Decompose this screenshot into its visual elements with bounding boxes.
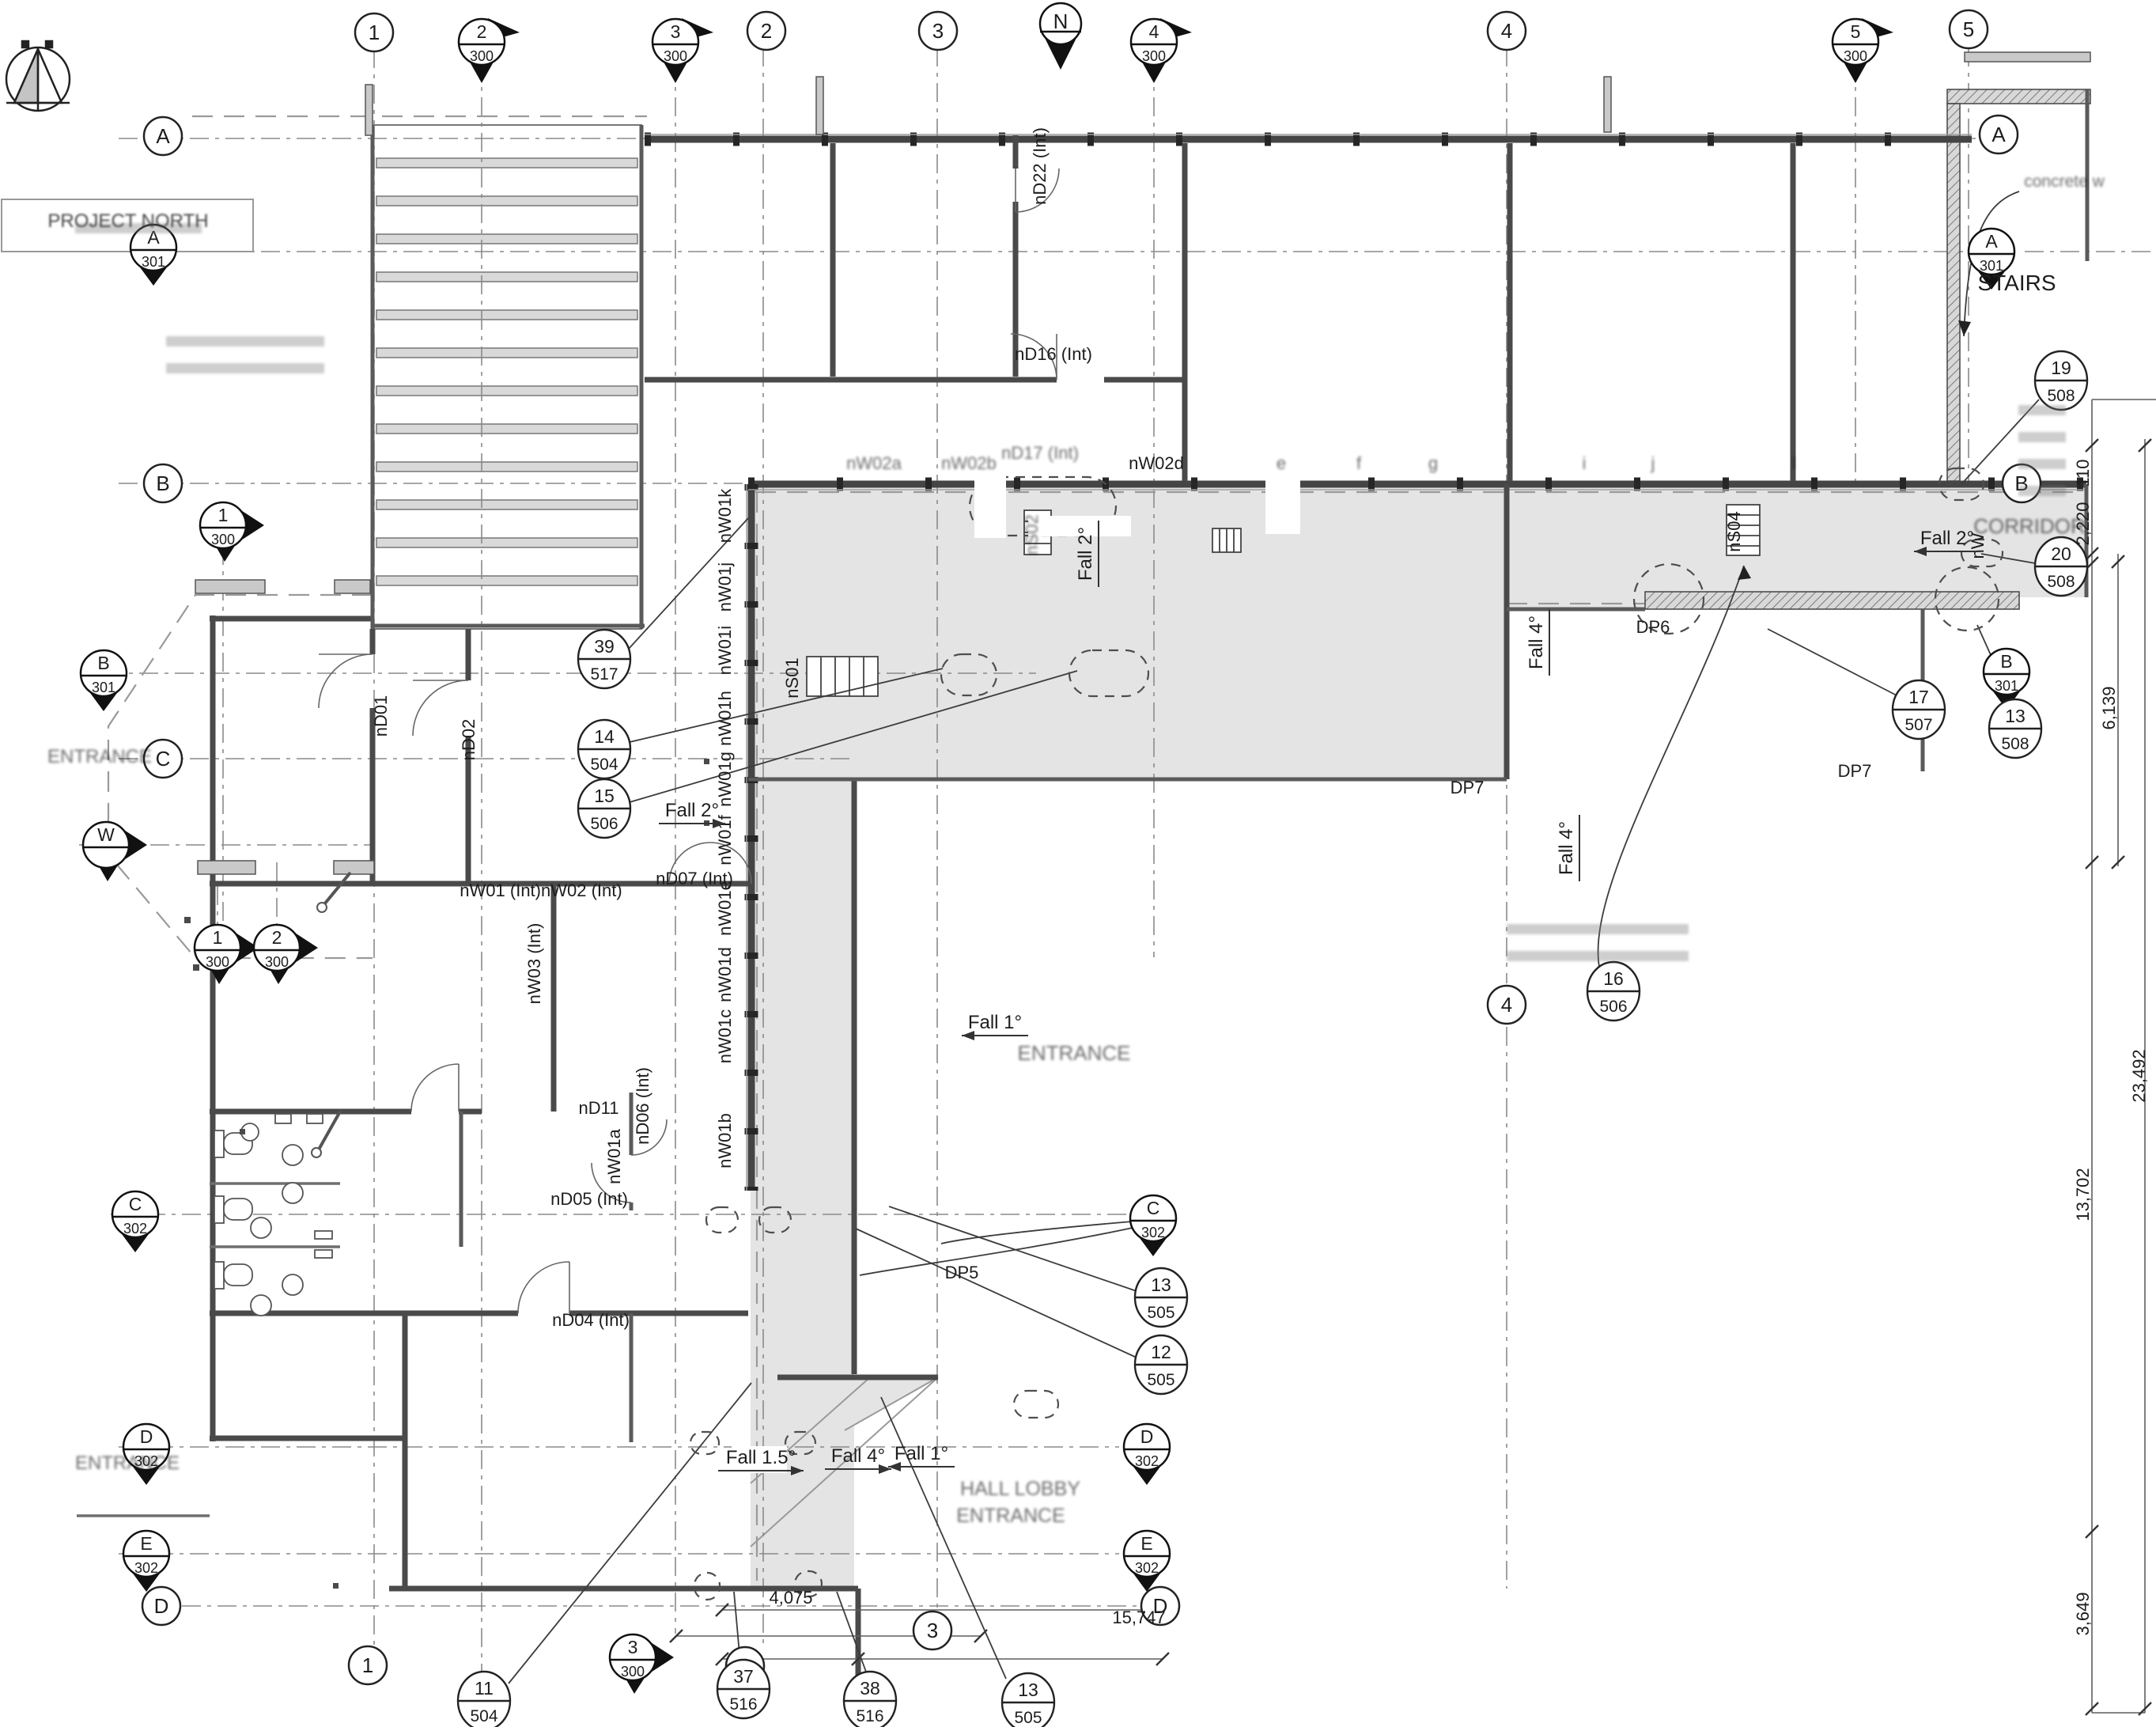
- stair-nS01: [807, 657, 878, 696]
- callout-sheet: 508: [2047, 573, 2075, 591]
- section-marker-sheet: 302: [1135, 1453, 1159, 1469]
- shelf: [315, 1231, 332, 1239]
- grid-bubble-5: 5: [1950, 10, 1988, 48]
- callout-38-516: 38516: [844, 1672, 896, 1727]
- dimension-15747: 15,747: [1112, 1608, 1165, 1627]
- section-marker-sheet: 300: [621, 1664, 645, 1680]
- fall-annotation: Fall 2°: [1914, 528, 1980, 556]
- callout-sheet: 508: [2001, 735, 2029, 753]
- section-marker-number: C: [1147, 1198, 1160, 1218]
- stair-nS03: [1212, 528, 1241, 552]
- tag-nd06-int-: nD06 (Int): [633, 1067, 652, 1145]
- callout-sheet: 505: [1014, 1709, 1042, 1727]
- tag-ns02: nS02: [1022, 514, 1042, 555]
- section-marker-sheet: 301: [92, 680, 115, 695]
- callout-13-505: 13505: [1002, 1673, 1054, 1727]
- dimension-23492: 23,492: [2129, 1049, 2149, 1102]
- tag-nw01d: nW01d: [715, 947, 735, 1002]
- wc-fixture: [214, 1196, 252, 1223]
- section-marker-C-302: C302: [112, 1191, 158, 1252]
- door-nD04: [518, 1262, 569, 1313]
- fall-text: Fall 2°: [665, 800, 719, 821]
- tag-nd04-int-: nD04 (Int): [552, 1310, 630, 1330]
- project-north-label: PROJECT NORTH: [9, 210, 247, 233]
- dimension-6139: 6,139: [2099, 686, 2119, 729]
- tag-nw01e: nW01e: [715, 881, 735, 936]
- note-entrance: ENTRANCE: [75, 1452, 180, 1474]
- callout-sheet: 505: [1147, 1304, 1174, 1322]
- callout-number: 20: [2051, 543, 2071, 564]
- fall-annotation: Fall 1°: [962, 1012, 1028, 1040]
- tag-nd01: nD01: [371, 695, 391, 737]
- section-marker-number: E: [140, 1533, 152, 1554]
- section-marker-C-302: C302: [1130, 1195, 1176, 1256]
- section-marker-number: E: [1140, 1533, 1152, 1554]
- section-marker-number: B: [2000, 651, 2012, 672]
- sink: [307, 1114, 323, 1123]
- section-marker-sheet: 300: [1844, 48, 1867, 64]
- grid-bubble-label: 3: [932, 19, 944, 43]
- grid-bubble-4: 4: [1488, 12, 1526, 50]
- callout-number: 14: [594, 726, 615, 747]
- callout-sheet: 516: [729, 1695, 757, 1714]
- tag-nw01j: nW01j: [715, 562, 735, 612]
- callout-number: 39: [594, 636, 615, 657]
- section-marker-3-300: 3300: [652, 18, 713, 83]
- grid-bubble-A: A: [1980, 116, 2018, 153]
- tag-nw03-int-: nW03 (Int): [524, 923, 544, 1005]
- section-marker-sheet: 302: [1141, 1225, 1165, 1240]
- callout-sheet: 507: [1904, 716, 1932, 734]
- roof-gray-zones: [751, 484, 2086, 1589]
- callout-number: 13: [1018, 1680, 1038, 1700]
- tag-ns04: nS04: [1724, 511, 1744, 551]
- grid-bubble-3: 3: [919, 12, 957, 50]
- floor-plan-sheet: 12345ABCAB4123DD2300330043005300N1300130…: [0, 0, 2156, 1727]
- fall-text: Fall 4°: [1526, 615, 1547, 669]
- fall-annotation: Fall 4°: [1526, 609, 1549, 676]
- callout-number: 38: [860, 1678, 880, 1699]
- tag-nd11: nD11: [579, 1098, 619, 1118]
- fall-annotation: Fall 2°: [1075, 521, 1099, 587]
- grid-bubble-label: 1: [369, 21, 380, 44]
- callout-sheet: 504: [470, 1707, 497, 1725]
- fall-annotation: Fall 1.5°: [718, 1447, 804, 1475]
- section-marker-W: W: [83, 822, 147, 881]
- callout-11-504: 11504: [458, 1672, 510, 1727]
- dimension-3649: 3,649: [2073, 1592, 2093, 1635]
- callout-16-506: 16506: [1587, 962, 1640, 1021]
- grid-bubble-label: 2: [761, 19, 772, 43]
- grid-bubble-label: C: [156, 747, 171, 771]
- grid-bubble-2: 2: [747, 12, 785, 50]
- section-marker-number: 1: [213, 927, 223, 948]
- tag-nw01-int-nw02-int-: nW01 (Int)nW02 (Int): [460, 881, 622, 900]
- basin: [251, 1218, 271, 1238]
- tag-dp6: DP6: [1636, 617, 1670, 637]
- callout-number: 16: [1603, 968, 1624, 989]
- section-marker-sheet: 300: [470, 48, 494, 64]
- tag-e: e: [1277, 453, 1286, 473]
- grid-bubble-label: B: [156, 472, 169, 495]
- section-marker-1-300: 1300: [195, 925, 259, 984]
- tag-nd05-int-: nD05 (Int): [550, 1189, 628, 1209]
- note-stairs: STAIRS: [1977, 271, 2056, 295]
- grid-bubble-label: 3: [927, 1619, 938, 1642]
- section-marker-sheet: 300: [664, 48, 687, 64]
- section-marker-number: 3: [671, 21, 681, 42]
- grid-bubble-label: D: [154, 1594, 169, 1618]
- grid-bubble-label: 5: [1963, 17, 1974, 41]
- grid-bubble-A: A: [144, 117, 182, 155]
- callout-37-516: 37516: [717, 1660, 770, 1718]
- section-marker-2-300: 2300: [459, 18, 520, 83]
- tag-l: l: [1792, 453, 1796, 473]
- section-marker-number: B: [97, 653, 109, 673]
- callout-39-517: 39517: [578, 630, 630, 688]
- tag-nd17-int-: nD17 (Int): [1001, 443, 1079, 463]
- section-marker-sheet: 301: [1995, 678, 2018, 694]
- dimension-13702: 13,702: [2073, 1168, 2093, 1221]
- section-marker-sheet: 300: [265, 954, 289, 970]
- tag-f: f: [1356, 453, 1362, 473]
- door-nD06: [411, 1064, 459, 1112]
- callout-13-505: 13505: [1135, 1268, 1187, 1327]
- fall-text: Fall 4°: [1556, 821, 1577, 875]
- section-marker-number: 1: [218, 505, 229, 525]
- shelf: [315, 1250, 332, 1258]
- dimension-2220: 2,220: [2073, 502, 2093, 545]
- note-concrete-w: concrete w: [2024, 172, 2105, 191]
- tag-nw01g: nW01g: [715, 752, 735, 807]
- section-marker-sheet: 300: [211, 532, 235, 547]
- tag-nd07-int-: nD07 (Int): [656, 869, 733, 888]
- tag-nw01i: nW01i: [715, 626, 735, 675]
- section-marker-number: D: [140, 1426, 153, 1447]
- note-entrance: ENTRANCE: [47, 746, 152, 767]
- note-corridor: CORRIDOR: [1973, 514, 2086, 538]
- callout-number: 37: [733, 1666, 754, 1687]
- note-entrance: ENTRANCE: [956, 1505, 1065, 1527]
- tag-dp7: DP7: [1451, 778, 1485, 797]
- callout-13-508: 13508: [1989, 699, 2041, 758]
- fall-annotation: Fall 2°: [659, 800, 725, 828]
- basin: [282, 1274, 303, 1295]
- grid-bubble-label: A: [1991, 123, 2006, 146]
- fall-text: Fall 2°: [1075, 527, 1096, 581]
- section-marker-number: 4: [1149, 21, 1159, 42]
- section-marker-number: 2: [272, 927, 282, 948]
- section-marker-number: 5: [1851, 21, 1861, 42]
- tag-nw02a: nW02a: [846, 453, 902, 473]
- tag-ns01: nS01: [782, 657, 802, 698]
- callout-sheet: 517: [590, 665, 618, 684]
- tag-nw01c: nW01c: [715, 1009, 735, 1063]
- fall-annotation: Fall 4°: [825, 1445, 891, 1474]
- callout-number: 11: [475, 1678, 494, 1699]
- tag-nw01b: nW01b: [715, 1113, 735, 1168]
- basin: [282, 1183, 303, 1203]
- fall-annotation: Fall 1°: [888, 1443, 955, 1471]
- illegible-note: [1507, 924, 1689, 961]
- callout-sheet: 506: [590, 815, 618, 833]
- fall-text: Fall 4°: [831, 1445, 885, 1467]
- dimension-110: 110: [2073, 459, 2093, 487]
- note-hall-lobby: HALL LOBBY: [960, 1478, 1080, 1500]
- section-marker-number: D: [1140, 1426, 1154, 1447]
- callout-sheet: 504: [590, 756, 618, 774]
- wc-fixture: [214, 1262, 252, 1289]
- tag-nd22-int-: nD22 (Int): [1030, 127, 1050, 205]
- callout-sheet: 508: [2047, 387, 2075, 405]
- callout-number: 17: [1908, 687, 1929, 707]
- callout-sheet: 506: [1599, 998, 1627, 1016]
- basin: [282, 1145, 303, 1165]
- section-marker-number: 3: [628, 1637, 638, 1657]
- section-marker-E-302: E302: [1124, 1531, 1170, 1592]
- fall-annotation: Fall 4°: [1556, 815, 1579, 881]
- tag-i: i: [1583, 453, 1587, 473]
- tag-g: g: [1428, 453, 1438, 473]
- callout-15-506: 15506: [578, 779, 630, 838]
- section-marker-sheet: 302: [134, 1560, 158, 1576]
- section-marker-1-300: 1300: [200, 502, 264, 562]
- grid-bubble-B: B: [144, 464, 182, 502]
- grid-bubble-4: 4: [1488, 986, 1526, 1024]
- floor-plan-drawing: 12345ABCAB4123DD2300330043005300N1300130…: [0, 0, 2156, 1727]
- section-marker-A-301: A301: [130, 225, 176, 286]
- tag-dp7: DP7: [1838, 761, 1872, 781]
- fall-text: Fall 1°: [895, 1443, 948, 1464]
- tag-nw02d: nW02d: [1129, 453, 1184, 473]
- north-marker-label: N: [1053, 9, 1069, 33]
- callout-17-507: 17507: [1893, 680, 1945, 739]
- section-marker-2-300: 2300: [254, 925, 318, 984]
- sink: [275, 1114, 291, 1123]
- grid-bubble-label: 4: [1501, 993, 1512, 1017]
- section-marker-sheet: 300: [206, 954, 229, 970]
- fall-text: Fall 1.5°: [726, 1447, 796, 1468]
- callout-number: 13: [2005, 706, 2026, 726]
- grid-bubble-B: B: [2003, 464, 2041, 502]
- tag-nw01k: nW01k: [715, 488, 735, 543]
- tag-nw02b: nW02b: [941, 453, 997, 473]
- basin: [251, 1295, 271, 1316]
- tag-nd02: nD02: [459, 719, 478, 761]
- callout-number: 19: [2051, 358, 2071, 378]
- tag-nw01a: nW01a: [604, 1128, 624, 1184]
- fall-text: Fall 2°: [1920, 528, 1974, 549]
- section-marker-number: 2: [477, 21, 487, 42]
- section-marker-sheet: 301: [142, 254, 165, 270]
- grid-bubble-label: 1: [362, 1653, 373, 1677]
- callout-12-505: 12505: [1135, 1335, 1187, 1394]
- callout-number: 15: [594, 786, 615, 806]
- section-marker-number: A: [1985, 231, 1998, 252]
- grid-bubble-label: A: [156, 124, 170, 148]
- tag-nw01h: nW01h: [715, 691, 735, 746]
- callout-14-504: 14504: [578, 720, 630, 778]
- grid-bubble-D: D: [142, 1587, 180, 1625]
- section-marker-sheet: 302: [1135, 1560, 1159, 1576]
- section-marker-3-300: 3300: [610, 1634, 674, 1694]
- door-nD01: [319, 654, 373, 708]
- callout-sheet: 505: [1147, 1371, 1174, 1389]
- section-marker-sheet: 302: [123, 1221, 147, 1237]
- note-entrance: ENTRANCE: [1017, 1041, 1130, 1065]
- section-marker-N: N: [1040, 3, 1081, 70]
- grid-bubble-1: 1: [349, 1646, 387, 1684]
- grid-bubble-label: 4: [1501, 19, 1512, 43]
- dimension-4075: 4,075: [769, 1588, 812, 1608]
- section-marker-sheet: 300: [1142, 48, 1166, 64]
- section-marker-B-301: B301: [81, 650, 127, 711]
- section-marker-number: C: [129, 1194, 142, 1214]
- section-marker-D-302: D302: [1124, 1424, 1170, 1485]
- tag-dp5: DP5: [945, 1263, 979, 1282]
- tag-nd16-int-: nD16 (Int): [1015, 344, 1092, 364]
- callout-19-508: 19508: [2035, 351, 2087, 410]
- section-marker-E-302: E302: [123, 1531, 169, 1592]
- callout-number: 13: [1151, 1274, 1171, 1295]
- section-marker-4-300: 4300: [1131, 18, 1192, 83]
- tag-j: j: [1651, 453, 1655, 473]
- callout-sheet: 516: [856, 1707, 883, 1725]
- section-marker-number: W: [97, 824, 115, 845]
- fall-text: Fall 1°: [968, 1012, 1022, 1033]
- illegible-note: [166, 336, 324, 373]
- louvre-deck: [373, 125, 641, 629]
- section-marker-5-300: 5300: [1833, 18, 1893, 83]
- callout-number: 12: [1151, 1342, 1171, 1362]
- grid-bubble-3: 3: [913, 1611, 951, 1649]
- grid-bubble-1: 1: [355, 13, 393, 51]
